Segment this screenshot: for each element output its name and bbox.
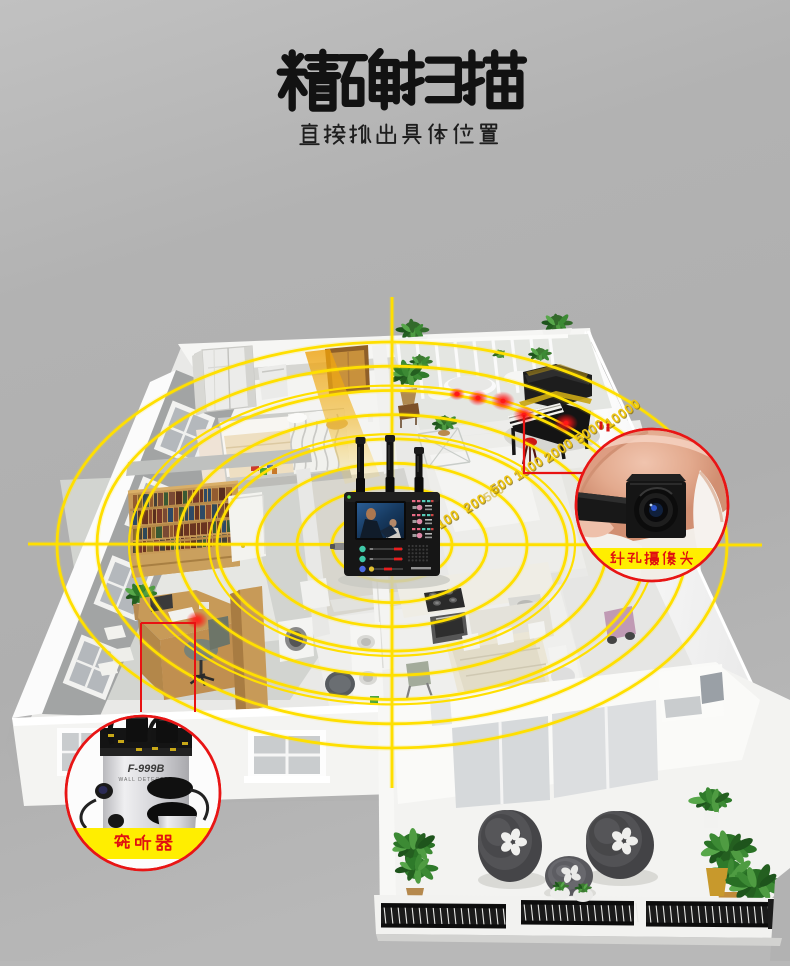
svg-text:F-999B: F-999B [128, 763, 165, 775]
